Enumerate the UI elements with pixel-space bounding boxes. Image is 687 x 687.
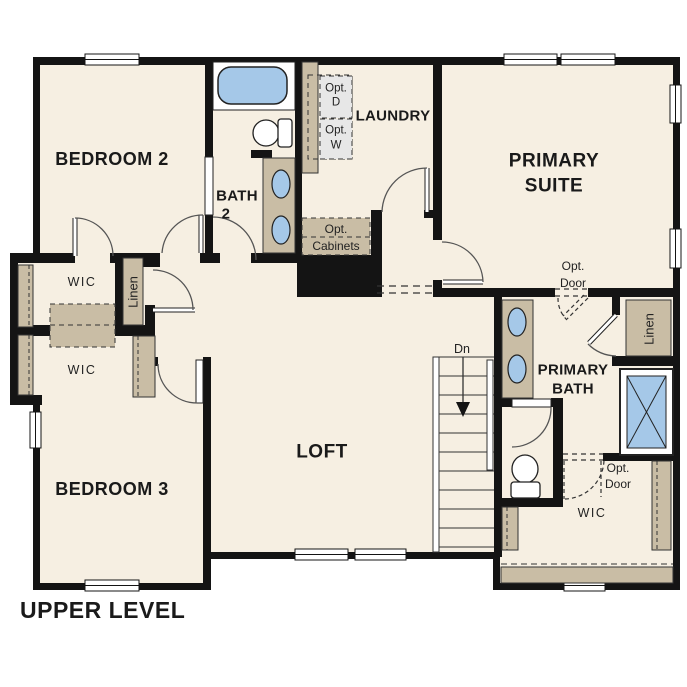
floorplan-canvas: BEDROOM 2 BEDROOM 3 PRIMARY SUITE LOFT L…: [0, 0, 687, 687]
annotation-opt-door-suite-1: Opt.: [562, 260, 585, 272]
sink-icon: [272, 216, 290, 244]
room-label-loft: LOFT: [296, 443, 348, 462]
floor-bedroom3: [33, 357, 211, 590]
room-label-primary-suite-2: SUITE: [525, 177, 583, 196]
closet-label-wic-bedroom2: WIC: [68, 276, 97, 289]
annotation-opt-door-suite-2: Door: [560, 277, 586, 289]
closet-label-linen-right: Linen: [643, 313, 656, 345]
toilet-icon: [253, 120, 279, 146]
page-title: UPPER LEVEL: [20, 599, 185, 622]
room-label-bedroom2: BEDROOM 2: [55, 150, 169, 168]
door-jamb: [205, 157, 213, 215]
room-label-primary-suite-1: PRIMARY: [509, 152, 599, 171]
closet-label-wic-primary: WIC: [578, 507, 607, 520]
sink-icon: [508, 355, 526, 383]
annotation-opt-door-wic-1: Opt.: [607, 462, 630, 474]
floorplan-drawing: [0, 0, 687, 687]
room-label-bedroom3: BEDROOM 3: [55, 480, 169, 498]
chase-black-block: [297, 255, 377, 297]
stair-rail: [487, 360, 493, 470]
primary-wic-rod-east: [652, 461, 671, 550]
stair-rail: [433, 357, 439, 552]
closet-label-linen-left: Linen: [127, 276, 140, 308]
annotation-opt-dryer-1: Opt.: [325, 83, 347, 95]
annotation-opt-cabinets-2: Cabinets: [312, 240, 359, 252]
primary-wic-rod-west: [502, 507, 518, 550]
annotation-opt-cabinets-1: Opt.: [325, 223, 348, 235]
annotation-opt-washer-2: W: [331, 140, 342, 152]
room-label-bath2-1: BATH: [216, 189, 258, 204]
wic2-rod-east: [133, 336, 155, 397]
sink-icon: [272, 170, 290, 198]
room-label-primary-bath-2: BATH: [552, 382, 594, 397]
room-label-primary-bath-1: PRIMARY: [538, 363, 609, 378]
room-label-laundry: LAUNDRY: [356, 109, 431, 124]
annotation-opt-door-wic-2: Door: [605, 478, 631, 490]
wic2-rod-west: [18, 335, 33, 395]
annotation-opt-dryer-2: D: [332, 97, 340, 109]
wic1-rod: [18, 265, 33, 327]
sink-icon: [508, 308, 526, 336]
room-label-bath2-2: 2: [222, 207, 231, 222]
door-jamb: [512, 399, 551, 407]
laundry-cabinet-strip: [302, 62, 318, 173]
primary-wic-shelf: [501, 567, 673, 583]
annotation-stairs-down: Dn: [454, 343, 470, 356]
door-jamb: [196, 360, 203, 403]
annotation-opt-washer-1: Opt.: [325, 125, 347, 137]
closet-label-wic-bedroom3: WIC: [68, 364, 97, 377]
toilet-icon: [512, 455, 538, 483]
bathtub-icon: [218, 67, 287, 104]
